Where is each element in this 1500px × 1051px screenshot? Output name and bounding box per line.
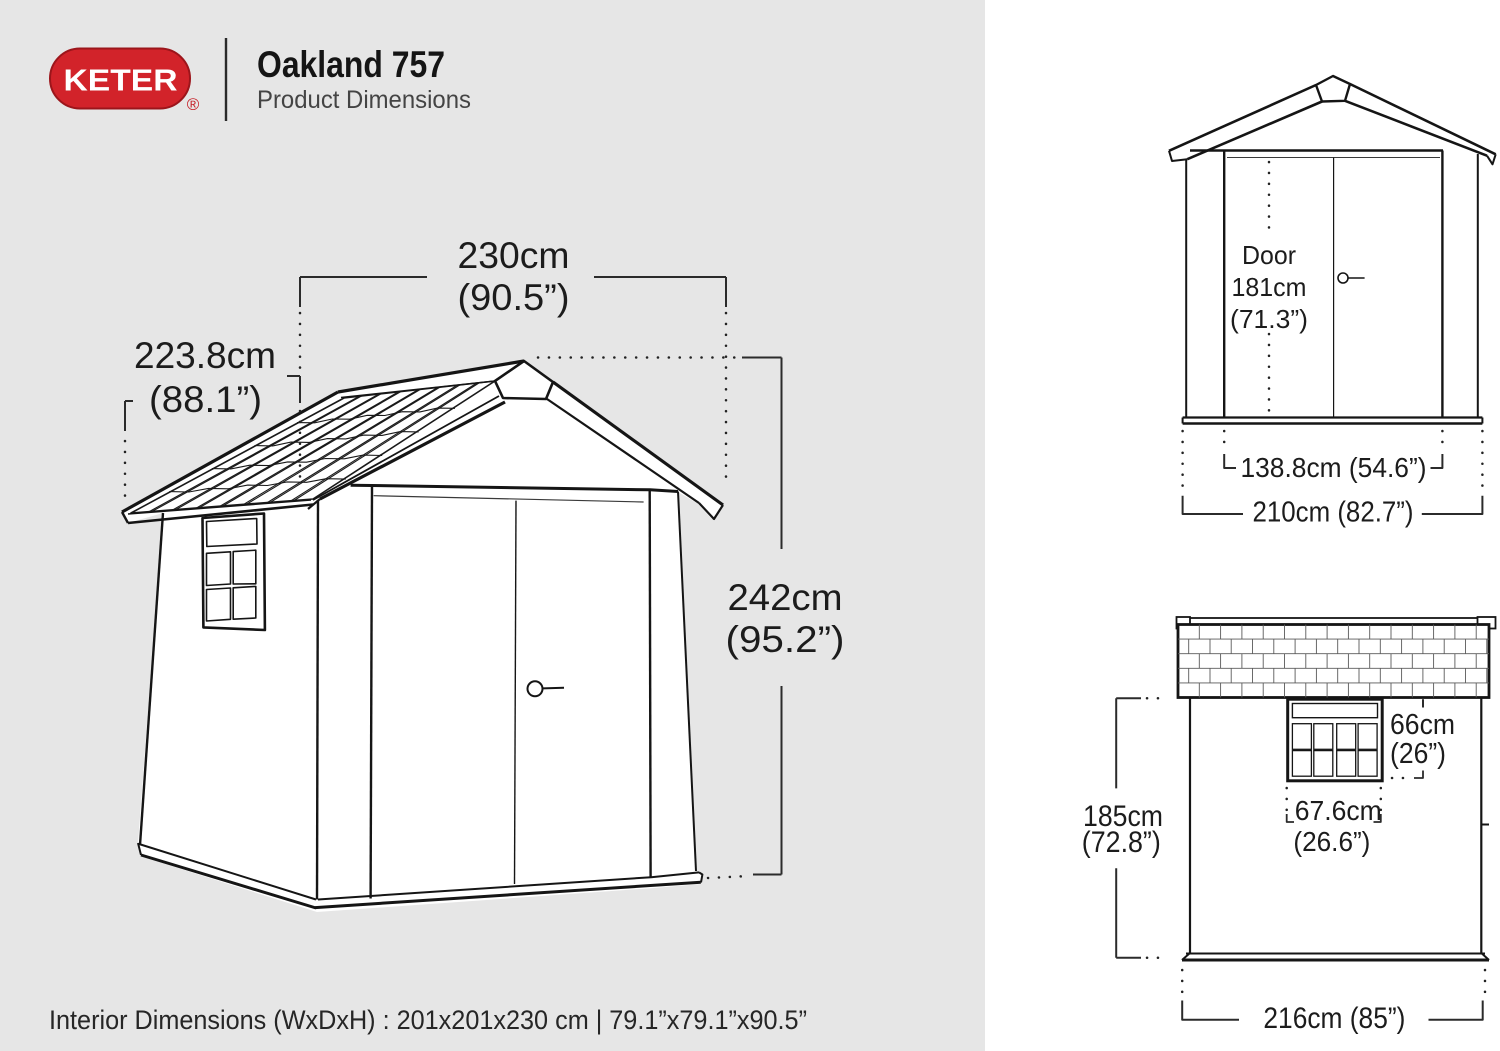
svg-text:138.8cm (54.6”): 138.8cm (54.6”) <box>1241 452 1427 483</box>
svg-text:230cm: 230cm <box>458 235 570 276</box>
svg-text:216cm (85”): 216cm (85”) <box>1263 1002 1405 1035</box>
svg-text:210cm (82.7”): 210cm (82.7”) <box>1253 497 1414 529</box>
svg-text:(71.3”): (71.3”) <box>1230 304 1308 334</box>
svg-text:(26.6”): (26.6”) <box>1293 826 1370 857</box>
svg-text:Interior Dimensions (WxDxH) :: Interior Dimensions (WxDxH) : 201x201x23… <box>49 1005 807 1035</box>
svg-text:181cm: 181cm <box>1232 272 1307 302</box>
svg-text:KETER: KETER <box>64 63 178 98</box>
svg-text:®: ® <box>187 95 200 114</box>
svg-text:Oakland 757: Oakland 757 <box>257 44 445 85</box>
svg-text:(72.8”): (72.8”) <box>1082 826 1161 859</box>
svg-text:223.8cm: 223.8cm <box>134 335 276 376</box>
svg-text:(26”): (26”) <box>1390 738 1446 770</box>
svg-text:242cm: 242cm <box>728 577 843 618</box>
svg-text:Door: Door <box>1242 240 1296 270</box>
svg-text:(90.5”): (90.5”) <box>458 277 570 318</box>
svg-text:(95.2”): (95.2”) <box>726 619 845 660</box>
svg-text:66cm: 66cm <box>1390 709 1455 741</box>
svg-text:67.6cm: 67.6cm <box>1295 795 1382 826</box>
svg-text:Product Dimensions: Product Dimensions <box>257 86 471 114</box>
svg-text:(88.1”): (88.1”) <box>149 379 262 420</box>
